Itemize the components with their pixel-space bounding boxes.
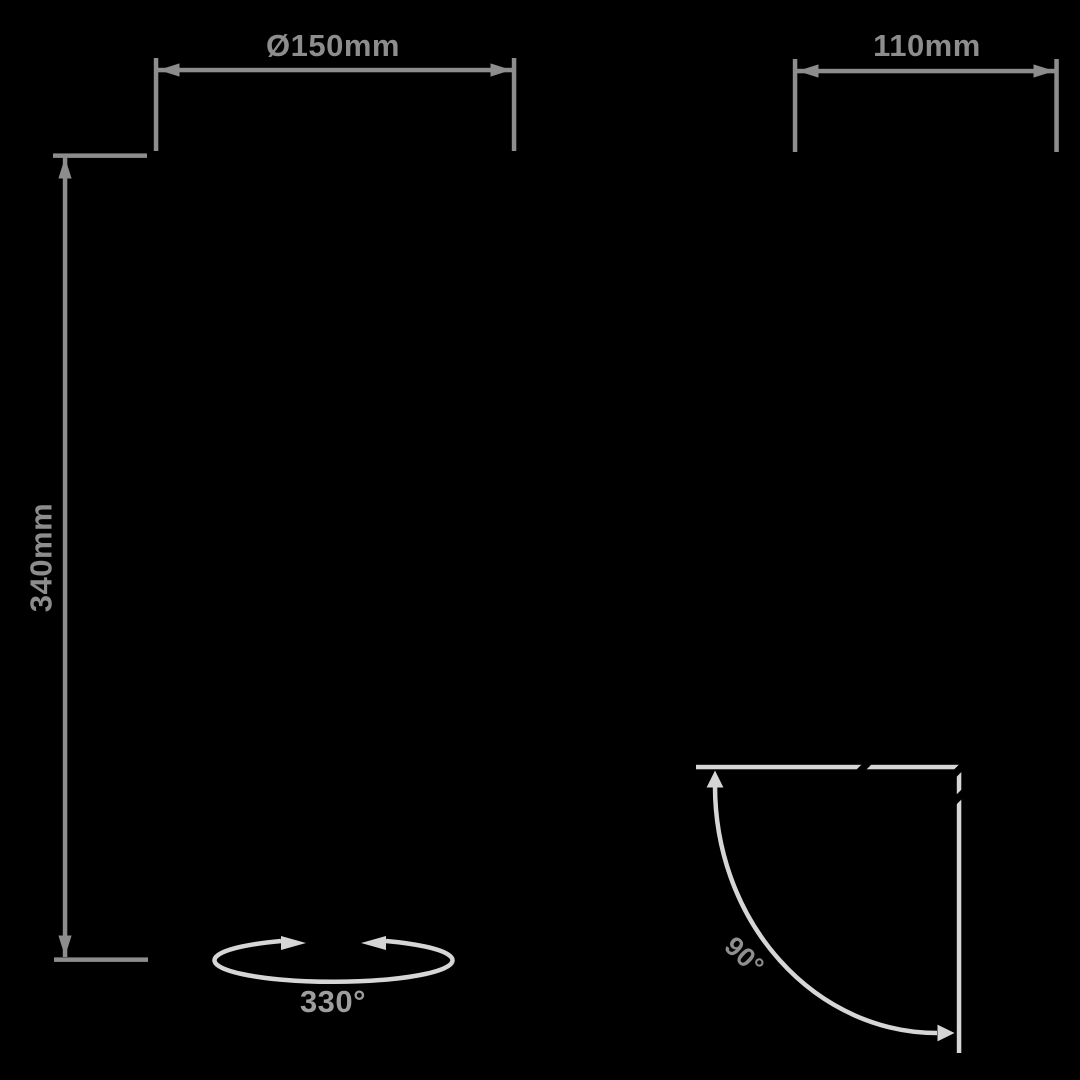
tilt-vertical-line: [957, 770, 962, 1053]
rotation-indicator: [215, 936, 453, 982]
dimension-diagram: Ø150mm 110mm 340mm 330° 90°: [0, 0, 1080, 1080]
diameter-arrow-right-icon: [491, 63, 512, 76]
diameter-extension-line-left: [154, 58, 159, 151]
diameter-label: Ø150mm: [183, 30, 483, 61]
diameter-dimension-line: [158, 68, 512, 73]
height-dimension: [53, 153, 148, 962]
rotation-angle-label: 330°: [183, 986, 483, 1017]
rotation-arrow-left-icon: [361, 936, 386, 950]
rotation-ellipse-arc: [215, 941, 453, 982]
tilt-arrow-up-icon: [707, 771, 724, 788]
tilt-indicator: [696, 755, 971, 1053]
rotation-arrow-right-icon: [281, 936, 306, 950]
width-dimension-line: [797, 69, 1055, 74]
width-arrow-left-icon: [798, 64, 819, 77]
dimension-graphics: [0, 0, 1080, 1080]
tilt-horizontal-line: [696, 765, 960, 770]
width-arrow-right-icon: [1034, 64, 1055, 77]
height-dimension-line: [63, 157, 68, 957]
height-arrow-down-icon: [58, 936, 71, 957]
tilt-arrow-right-icon: [938, 1025, 955, 1042]
width-extension-line-left: [793, 59, 798, 152]
height-arrow-up-icon: [58, 158, 71, 179]
width-label: 110mm: [777, 30, 1077, 61]
diameter-extension-line-right: [512, 58, 517, 151]
height-label: 340mm: [26, 408, 57, 708]
diameter-dimension: [154, 58, 517, 151]
width-dimension: [793, 59, 1059, 152]
diameter-arrow-left-icon: [159, 63, 180, 76]
tilt-quarter-arc: [715, 786, 937, 1033]
height-extension-line-bottom: [54, 957, 148, 962]
